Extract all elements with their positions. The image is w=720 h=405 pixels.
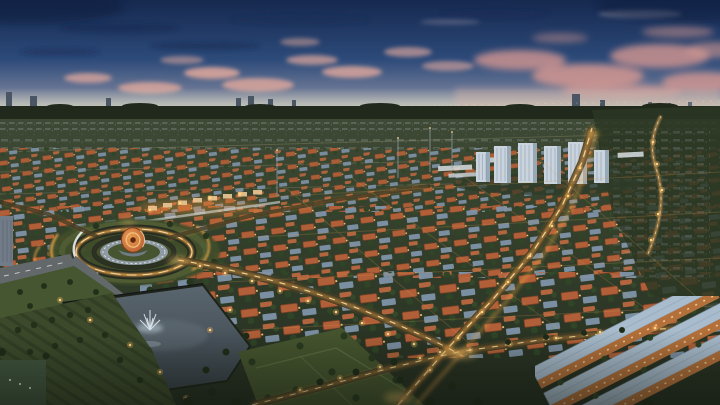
bottom-vignette <box>0 330 720 405</box>
horizon-pink-band <box>455 88 720 108</box>
aerial-render-image: Dusk aerial rendering of a master-planne… <box>0 0 720 405</box>
aerial-render-canvas: Dusk aerial rendering of a master-planne… <box>0 0 720 405</box>
